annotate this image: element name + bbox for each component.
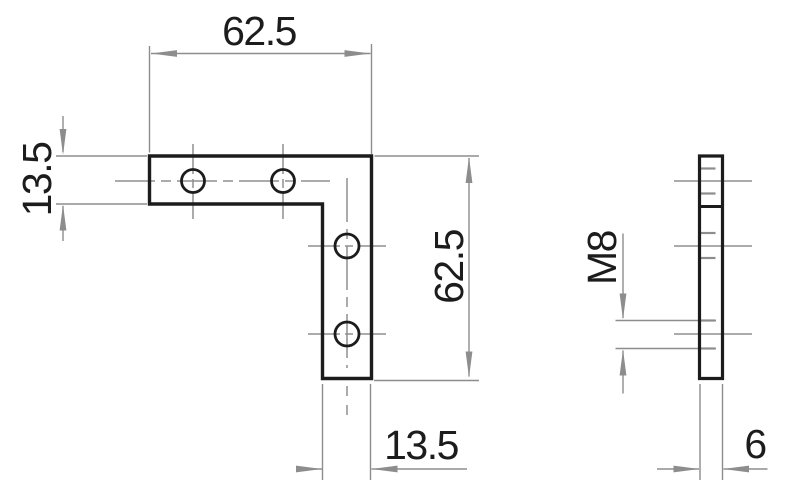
dim-top-width-label: 62.5	[222, 8, 296, 54]
arrowhead-right	[345, 50, 371, 57]
arrowhead-up	[620, 350, 627, 376]
dim-thread-label: M8	[579, 230, 625, 285]
dim-top-width: 62.5	[150, 8, 372, 154]
dim-right-height-label: 62.5	[426, 229, 472, 303]
arrowhead-down	[466, 352, 473, 378]
dim-bottom-thickness: 13.5	[296, 384, 467, 480]
dim-thread-m8: M8	[579, 230, 716, 393]
front-view-centerlines	[115, 144, 386, 415]
dim-plate-thickness: 6	[657, 384, 768, 480]
arrowhead-up	[60, 205, 67, 231]
drawing-sheet: 62.5 13.5 62.5	[0, 0, 800, 486]
dim-right-height: 62.5	[374, 156, 479, 381]
arrowhead-right	[674, 466, 700, 473]
dim-left-thickness-label: 13.5	[14, 142, 60, 216]
arrowhead-right	[296, 466, 322, 473]
arrowhead-left	[151, 50, 177, 57]
front-view	[150, 156, 372, 379]
arrowhead-up	[466, 157, 473, 183]
side-view	[674, 156, 752, 379]
technical-drawing: 62.5 13.5 62.5	[0, 0, 800, 486]
dim-bottom-thickness-label: 13.5	[384, 422, 458, 468]
front-view-outline	[150, 156, 372, 379]
arrowhead-down	[620, 294, 627, 320]
side-view-outline	[700, 156, 723, 379]
dim-plate-thickness-label: 6	[744, 421, 765, 467]
arrowhead-down	[60, 129, 67, 155]
dim-left-thickness: 13.5	[14, 116, 147, 241]
